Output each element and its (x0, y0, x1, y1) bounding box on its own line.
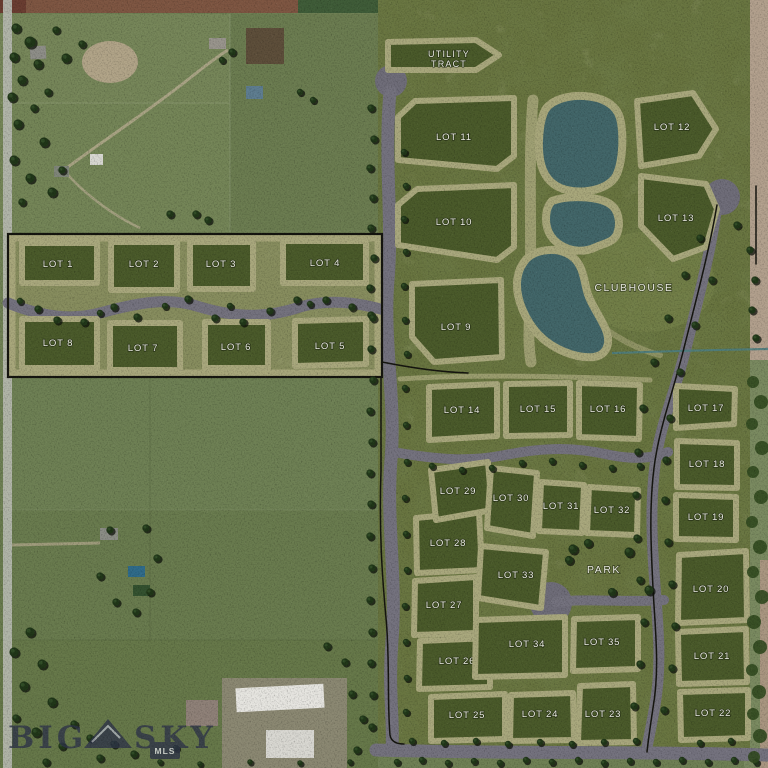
grain-overlay (0, 0, 768, 768)
listing-photo: LOT 1LOT 2LOT 3LOT 4LOT 5LOT 6LOT 7LOT 8… (0, 0, 768, 768)
plat-map-image: LOT 1LOT 2LOT 3LOT 4LOT 5LOT 6LOT 7LOT 8… (0, 0, 768, 768)
